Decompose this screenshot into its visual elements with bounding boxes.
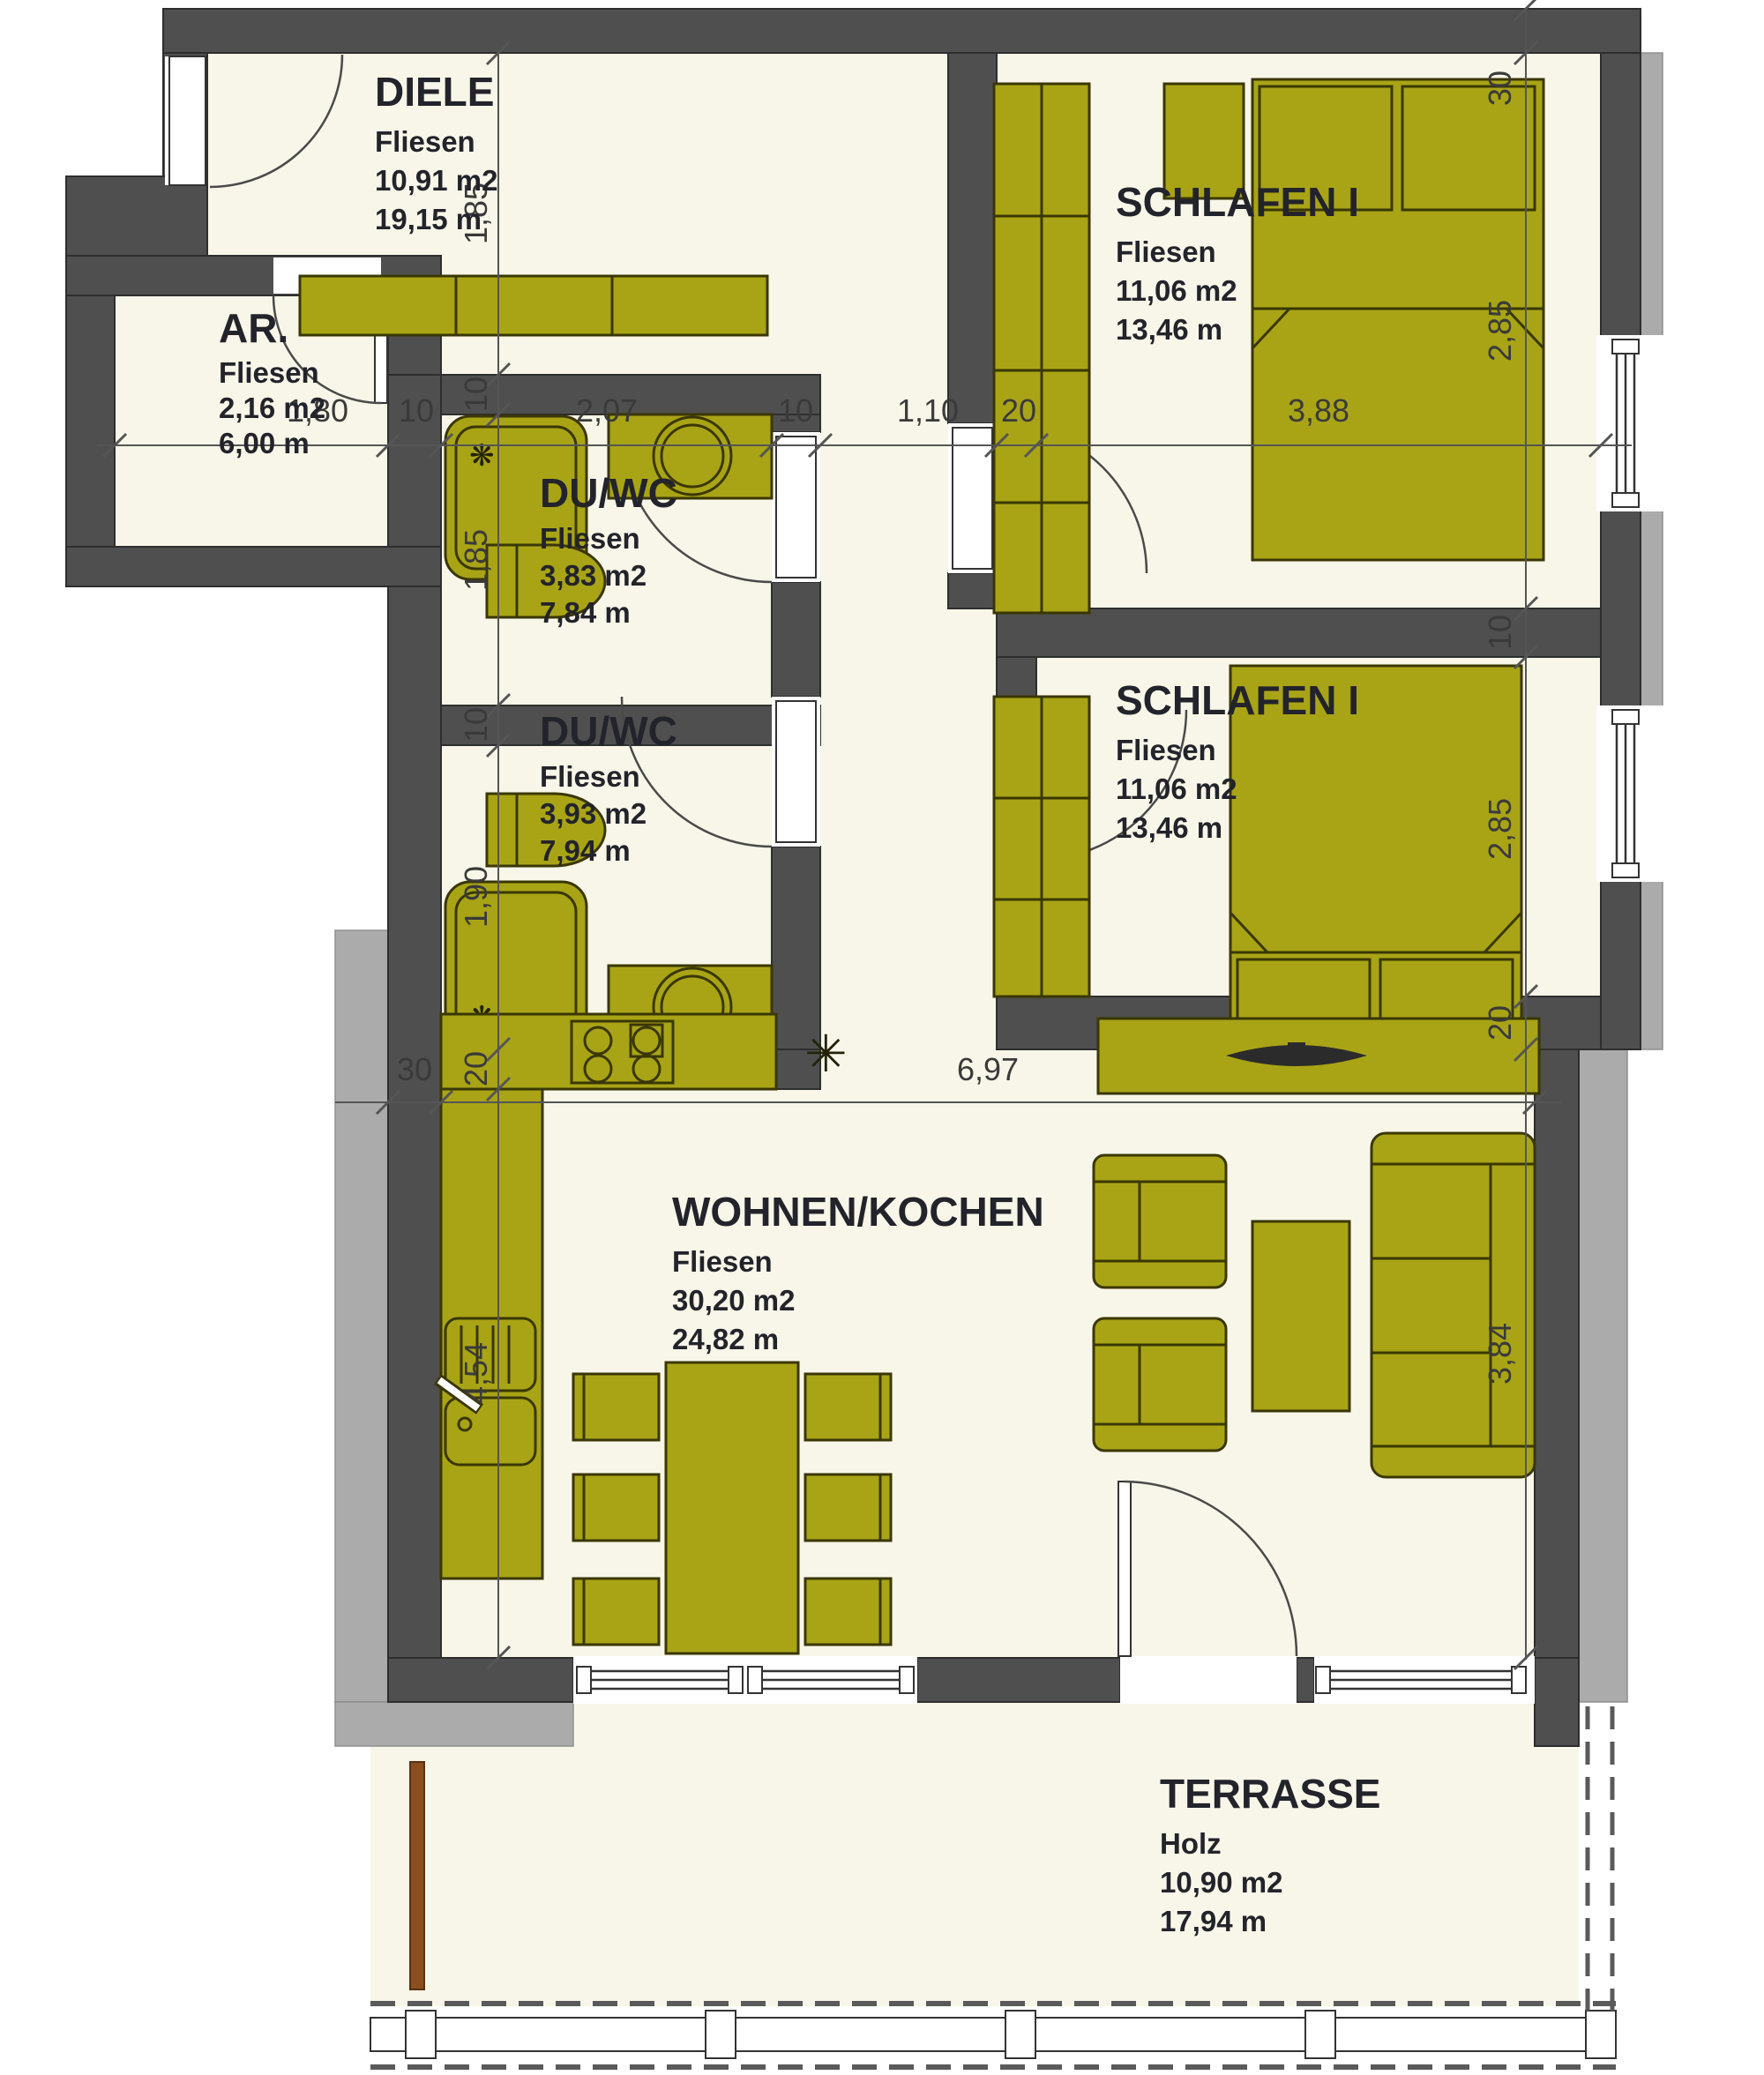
diele-perimeter: 19,15 m [375,203,482,235]
dim-middle-1: 6,97 [957,1051,1019,1087]
wall-top [163,9,1641,53]
wall-corridor-schlafen1-b [948,573,997,608]
dim-left-4: 1,90 [458,866,494,928]
chair-l3-back [573,1579,584,1645]
dim-right-4: 20 [1482,1005,1518,1041]
duwc2-perimeter: 7,94 m [540,834,631,867]
dim-left-5: 20 [458,1051,494,1086]
window-living-1-cap-l [577,1667,591,1693]
railing-post-3 [1005,2011,1035,2058]
dim-top-3: 10 [778,392,813,429]
floor-terrasse [370,1702,1579,2006]
railing-post-2 [706,2011,736,2058]
wohnen-area: 30,20 m2 [672,1284,795,1317]
duwc1-area: 3,83 m2 [540,559,647,592]
dim-right-0: 30 [1482,71,1518,106]
window-schlafen1-cap-bottom [1612,493,1639,507]
dim-top-6: 3,88 [1288,392,1349,429]
wohnen-perimeter: 24,82 m [672,1323,779,1355]
dim-right-3: 2,85 [1482,798,1518,860]
entrance-door-leaf [169,56,206,185]
dim-right-2: 10 [1482,615,1518,650]
wall-ar-left [66,295,115,547]
bath1-door-leaf [776,437,816,578]
terrasse-perimeter: 17,94 m [1160,1905,1267,1937]
dim-top-2: 2,07 [576,392,638,429]
window-living-2-cap-l [748,1667,762,1693]
chair-l1-back [573,1374,584,1440]
chair-r3-back [880,1579,891,1645]
ar-title: AR. [219,305,288,351]
window-schlafen2 [1596,705,1667,882]
terrasse-area: 10,90 m2 [1160,1866,1282,1899]
ar-perimeter: 6,00 m [219,427,310,459]
duwc1-title: DU/WC [540,470,677,516]
schlafen2-area: 11,06 m2 [1116,773,1237,805]
dim-left-6: 4,54 [458,1342,494,1404]
dining-table [666,1362,798,1653]
schlafen1-area: 11,06 m2 [1116,274,1237,307]
dim-left-3: 10 [458,707,494,743]
railing-post-5 [1586,2011,1616,2058]
ar-material: Fliesen [219,356,319,389]
wall-ext-left-c [388,586,441,1702]
schlafen1-title: SCHLAFEN I [1116,179,1359,225]
duwc1-perimeter: 7,84 m [540,596,631,629]
chair-r1-back [880,1374,891,1440]
wohnen-title: WOHNEN/KOCHEN [672,1189,1044,1235]
outer-band-left [335,930,388,1702]
schlafen2-material: Fliesen [1116,734,1216,766]
sofa [1372,1133,1535,1477]
chair-r3 [805,1579,880,1645]
window-schlafen1-cap-top [1612,340,1639,354]
dim-middle-0: 30 [397,1051,432,1087]
wall-schlafen-divider [997,608,1641,657]
kitchen-star-icon: ✳ [804,1024,848,1084]
window-living-3-cap-r [1512,1667,1526,1693]
terrasse-material: Holz [1160,1827,1222,1860]
diele-material: Fliesen [375,125,475,158]
ar-area: 2,16 m2 [219,392,325,424]
outer-band-right-lower [1579,1049,1627,1702]
duwc2-area: 3,93 m2 [540,797,647,830]
terrace-door-leaf [1118,1482,1131,1656]
chair-r2-back [880,1474,891,1541]
schlafen2-perimeter: 13,46 m [1116,811,1222,844]
wall-corridor-schlafen1-a [948,53,997,423]
coffee-table [1252,1221,1349,1411]
window-schlafen1 [1596,335,1667,511]
dim-left-1: 10 [458,377,494,412]
wall-bottom-left-pier [388,1658,573,1702]
schlafen1-perimeter: 13,46 m [1116,313,1222,346]
hall-cabinet [300,276,767,335]
dim-right-1: 2,85 [1482,300,1518,362]
dim-left-2: 1,85 [458,529,494,591]
floor-plan-drawing: ❋ ❋ ✳ [0,0,1764,2075]
diele-title: DIELE [375,69,494,115]
shower-head-icon: ❋ [469,438,495,474]
wall-ar-bottom [66,547,441,586]
dim-top-1: 10 [399,392,434,429]
schlafen2-title: SCHLAFEN I [1116,677,1359,723]
armchair-1 [1094,1155,1226,1288]
wall-bottom-mullion [1297,1658,1314,1702]
dim-top-4: 1,10 [897,392,959,429]
chair-l2 [584,1474,659,1541]
wall-right-upper [1601,53,1641,1049]
terrasse-title: TERRASSE [1160,1771,1380,1817]
wohnen-material: Fliesen [672,1245,773,1278]
railing-post-4 [1305,2011,1335,2058]
chair-r2 [805,1474,880,1541]
terrace-door-opening [1120,1656,1297,1704]
wall-right-pier [1535,1658,1579,1746]
tv-mount [1288,1042,1305,1053]
schlafen1-material: Fliesen [1116,235,1216,268]
wood-post [410,1762,424,1989]
railing-post-1 [406,2011,436,2058]
window-schlafen2-cap-top [1612,710,1639,724]
bath2-door-leaf [776,701,816,842]
wc2-cistern [487,794,517,866]
dim-right-5: 3,84 [1482,1323,1518,1385]
armchair-2 [1094,1318,1226,1451]
duwc2-title: DU/WC [540,708,677,754]
wall-right-living [1535,1049,1579,1658]
duwc1-material: Fliesen [540,522,640,555]
chair-l2-back [573,1474,584,1541]
wall-bottom-mid-pier [917,1658,1120,1702]
railing-band [370,2018,1616,2051]
dim-top-5: 20 [1001,392,1036,429]
window-schlafen2-cap-bottom [1612,863,1639,877]
chair-r1 [805,1374,880,1440]
wall-bath1-corridor-b [772,582,820,697]
schlafen1-door-leaf [953,428,992,569]
duwc2-material: Fliesen [540,760,640,793]
chair-l1 [584,1374,659,1440]
wall-step-top-left [66,176,207,256]
outer-band-right-upper [1641,53,1663,1049]
window-living-2-cap-r [900,1667,914,1693]
floor-plan-page: ❋ ❋ ✳ [0,0,1764,2075]
diele-area: 10,91 m2 [375,164,497,197]
chair-l3 [584,1579,659,1645]
window-living-1-cap-r [729,1667,743,1693]
wall-bath2-corridor [772,847,820,1049]
outer-band-bottom-left [335,1702,573,1746]
window-living-3-cap-l [1316,1667,1330,1693]
